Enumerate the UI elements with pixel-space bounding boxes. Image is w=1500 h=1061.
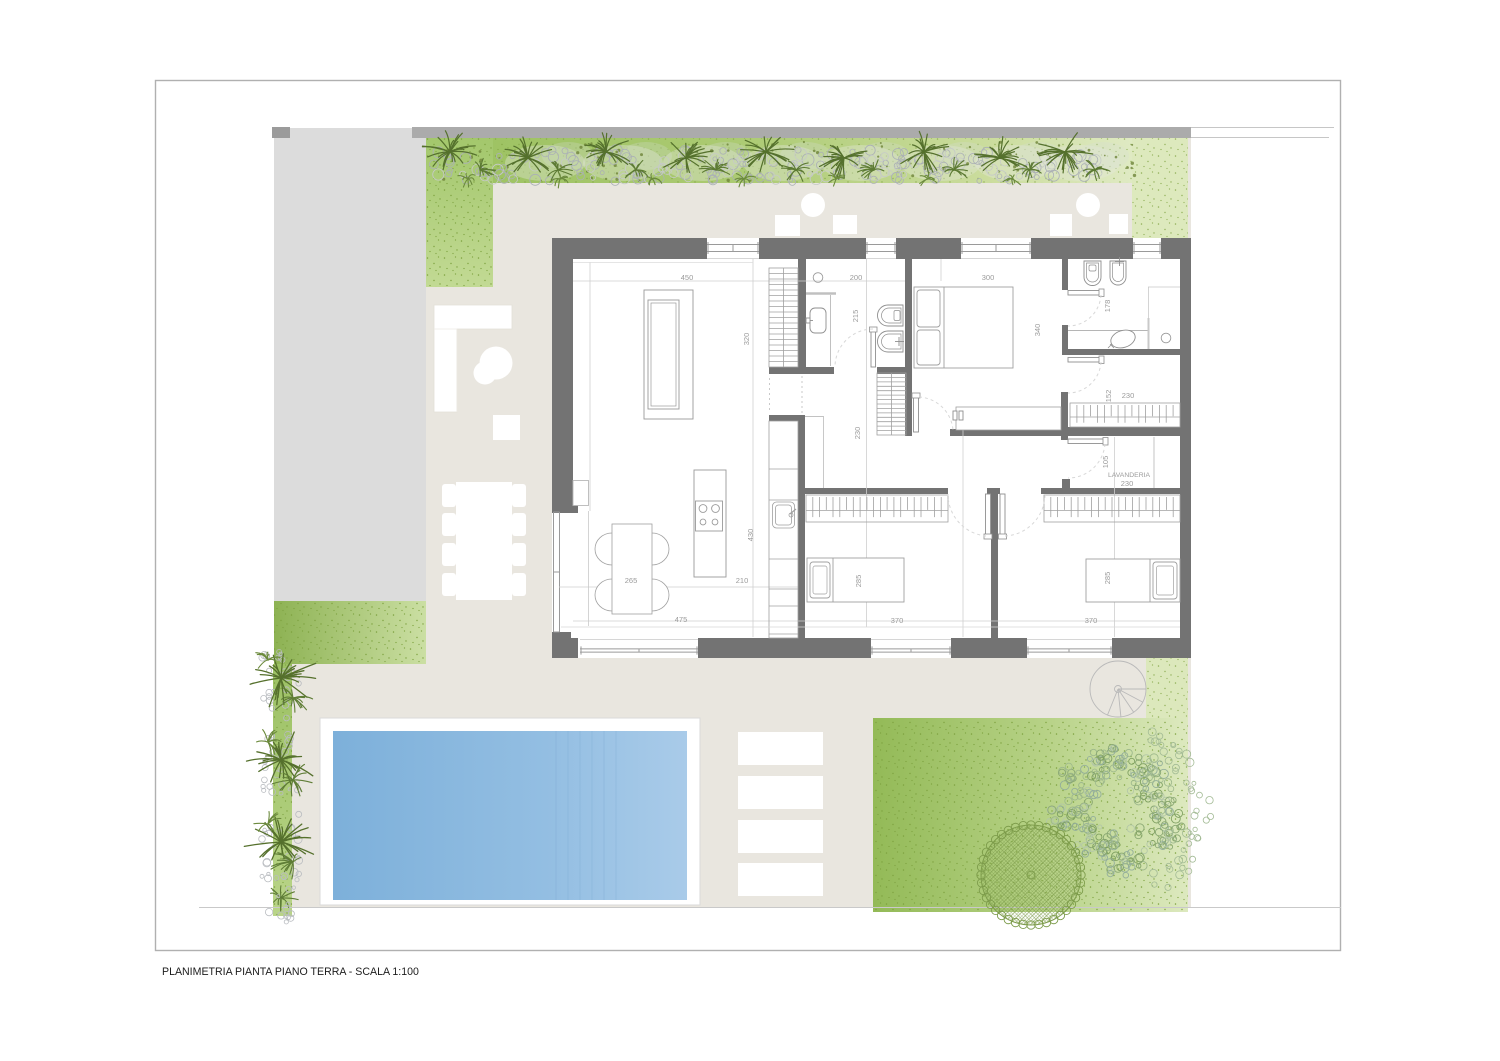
- svg-text:475: 475: [675, 615, 688, 624]
- svg-text:370: 370: [1085, 616, 1098, 625]
- svg-text:152: 152: [1104, 390, 1113, 403]
- svg-text:178: 178: [1103, 300, 1112, 313]
- svg-text:230: 230: [1121, 479, 1134, 488]
- svg-text:340: 340: [1033, 324, 1042, 337]
- svg-text:105: 105: [1101, 456, 1110, 469]
- svg-text:230: 230: [1122, 391, 1135, 400]
- svg-text:370: 370: [891, 616, 904, 625]
- svg-text:230: 230: [853, 427, 862, 440]
- svg-text:430: 430: [746, 529, 755, 542]
- svg-text:450: 450: [681, 273, 694, 282]
- svg-text:265: 265: [625, 576, 638, 585]
- svg-text:285: 285: [1103, 572, 1112, 585]
- svg-text:300: 300: [982, 273, 995, 282]
- svg-text:PLANIMETRIA PIANTA PIANO TERRA: PLANIMETRIA PIANTA PIANO TERRA - SCALA 1…: [162, 966, 419, 978]
- svg-text:215: 215: [851, 310, 860, 323]
- svg-text:285: 285: [854, 575, 863, 588]
- svg-text:320: 320: [742, 333, 751, 346]
- svg-text:210: 210: [736, 576, 749, 585]
- svg-text:LAVANDERIA: LAVANDERIA: [1108, 472, 1151, 479]
- svg-text:200: 200: [850, 273, 863, 282]
